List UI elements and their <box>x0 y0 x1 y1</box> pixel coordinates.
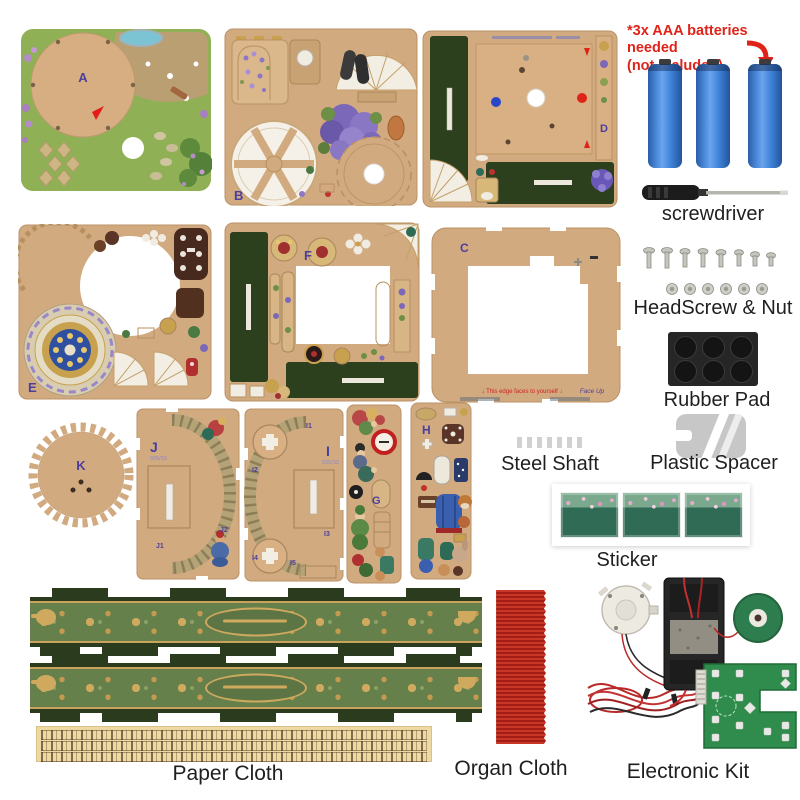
board-e-letter: E <box>28 380 37 395</box>
board-b: B <box>224 28 418 206</box>
dark-brown-piece <box>174 228 208 280</box>
screws-image <box>638 244 790 296</box>
board-c-face-up: Face Up <box>580 388 605 395</box>
turntable-disc <box>31 33 135 137</box>
motor <box>598 581 658 634</box>
board-a-garden: A <box>20 28 212 192</box>
board-c-hole <box>468 256 588 374</box>
part-i3: I3 <box>324 531 330 538</box>
blue-dot <box>491 97 501 107</box>
pcb-board <box>696 664 796 748</box>
sticker-3 <box>684 492 743 538</box>
sticker-label: Sticker <box>557 549 697 571</box>
board-d-hole <box>527 89 545 107</box>
board-j-letter: J <box>150 439 158 455</box>
rubber-pad-image <box>668 332 758 386</box>
paper-cloth-strip-1 <box>30 588 482 648</box>
electronic-kit-label: Electronic Kit <box>598 760 778 783</box>
steel-shaft-image <box>512 437 586 448</box>
paper-cloth-strip-2 <box>30 654 482 714</box>
board-d-letter: D <box>600 123 608 135</box>
plastic-spacer-label: Plastic Spacer <box>634 452 794 474</box>
nuts-row <box>667 284 768 295</box>
rubber-pad-label: Rubber Pad <box>637 389 797 411</box>
aaa-battery-3 <box>748 64 782 168</box>
board-i: I 935/33 I1 I2 I3 I4 I5 <box>244 408 344 582</box>
organ-cloth-image <box>494 590 546 744</box>
aaa-battery-2 <box>696 64 730 168</box>
board-f-letter: F <box>304 248 312 263</box>
board-c: C ↓ This edge faces to yourself ↓ Face U… <box>430 226 622 404</box>
product-parts-sheet: A <box>0 0 800 800</box>
part-i4: I4 <box>252 555 258 562</box>
gear-k-letter: K <box>76 458 86 473</box>
board-a-letter: A <box>78 70 88 85</box>
music-sheet-strip <box>36 726 432 762</box>
board-j: J 935/33 J1 J2 <box>136 408 240 580</box>
board-i-code: 935/33 <box>322 460 339 466</box>
gear-k: K <box>26 418 136 532</box>
part-i5: I5 <box>290 560 296 567</box>
sticker-2 <box>622 492 681 538</box>
electronic-kit-image <box>586 576 800 756</box>
board-i-letter: I <box>326 443 330 459</box>
strip-h: H <box>410 402 472 580</box>
steel-shaft-label: Steel Shaft <box>492 453 608 475</box>
sticker-sheet-image <box>552 484 750 546</box>
paper-cloth-label: Paper Cloth <box>148 762 308 785</box>
sticker-1 <box>560 492 619 538</box>
board-c-letter: C <box>460 241 469 255</box>
overalls-piece <box>436 494 462 530</box>
screwdriver-label: screwdriver <box>633 203 793 225</box>
part-j1: J1 <box>156 543 164 550</box>
headscrew-nut-label: HeadScrew & Nut <box>623 297 800 319</box>
strip-g: G <box>346 404 402 584</box>
board-a-hole <box>122 137 144 159</box>
aaa-battery-1 <box>648 64 682 168</box>
battery-notice-line1: *3x AAA batteries needed <box>627 23 800 58</box>
part-i1: I1 <box>306 423 312 430</box>
strip-h-letter: H <box>422 423 431 437</box>
part-i2: I2 <box>252 467 258 474</box>
board-c-edge-note: ↓ This edge faces to yourself ↓ <box>482 389 563 395</box>
board-j-code: 935/33 <box>150 456 167 462</box>
part-j2: J2 <box>220 527 228 534</box>
red-dot <box>577 93 587 103</box>
board-d: D <box>422 30 618 208</box>
board-b-letter: B <box>234 188 243 203</box>
board-e: E <box>18 224 212 400</box>
mandala-clock-face <box>24 304 116 396</box>
strip-g-letter: G <box>372 495 381 507</box>
board-f: F <box>224 222 420 402</box>
organ-cloth-label: Organ Cloth <box>446 757 576 780</box>
